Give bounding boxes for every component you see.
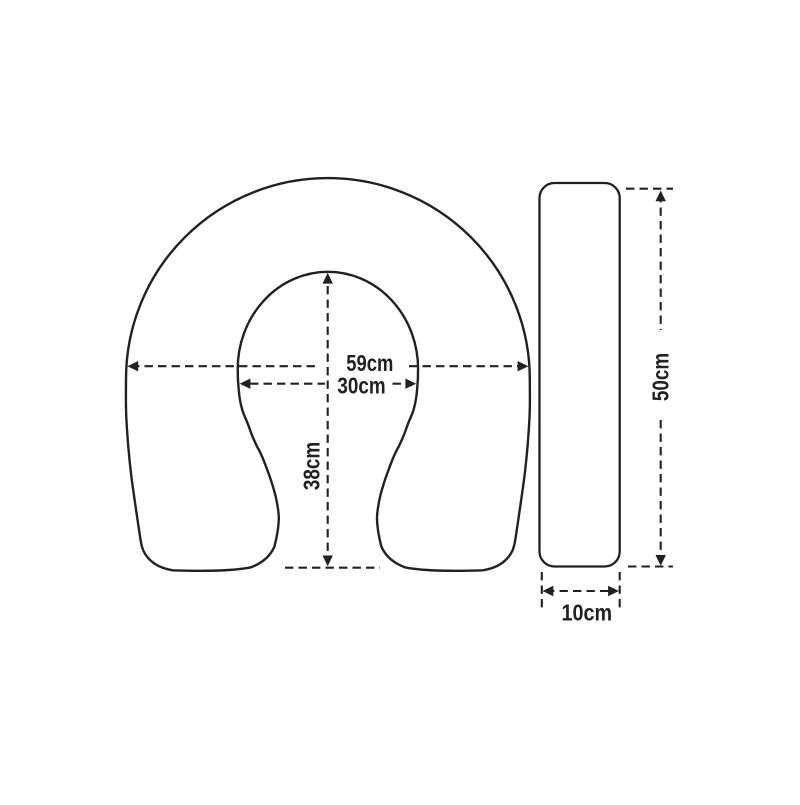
svg-text:59cm: 59cm (346, 351, 393, 376)
svg-text:30cm: 30cm (337, 374, 385, 399)
svg-text:50cm: 50cm (649, 353, 674, 401)
svg-text:38cm: 38cm (300, 442, 325, 490)
svg-text:10cm: 10cm (562, 600, 613, 626)
